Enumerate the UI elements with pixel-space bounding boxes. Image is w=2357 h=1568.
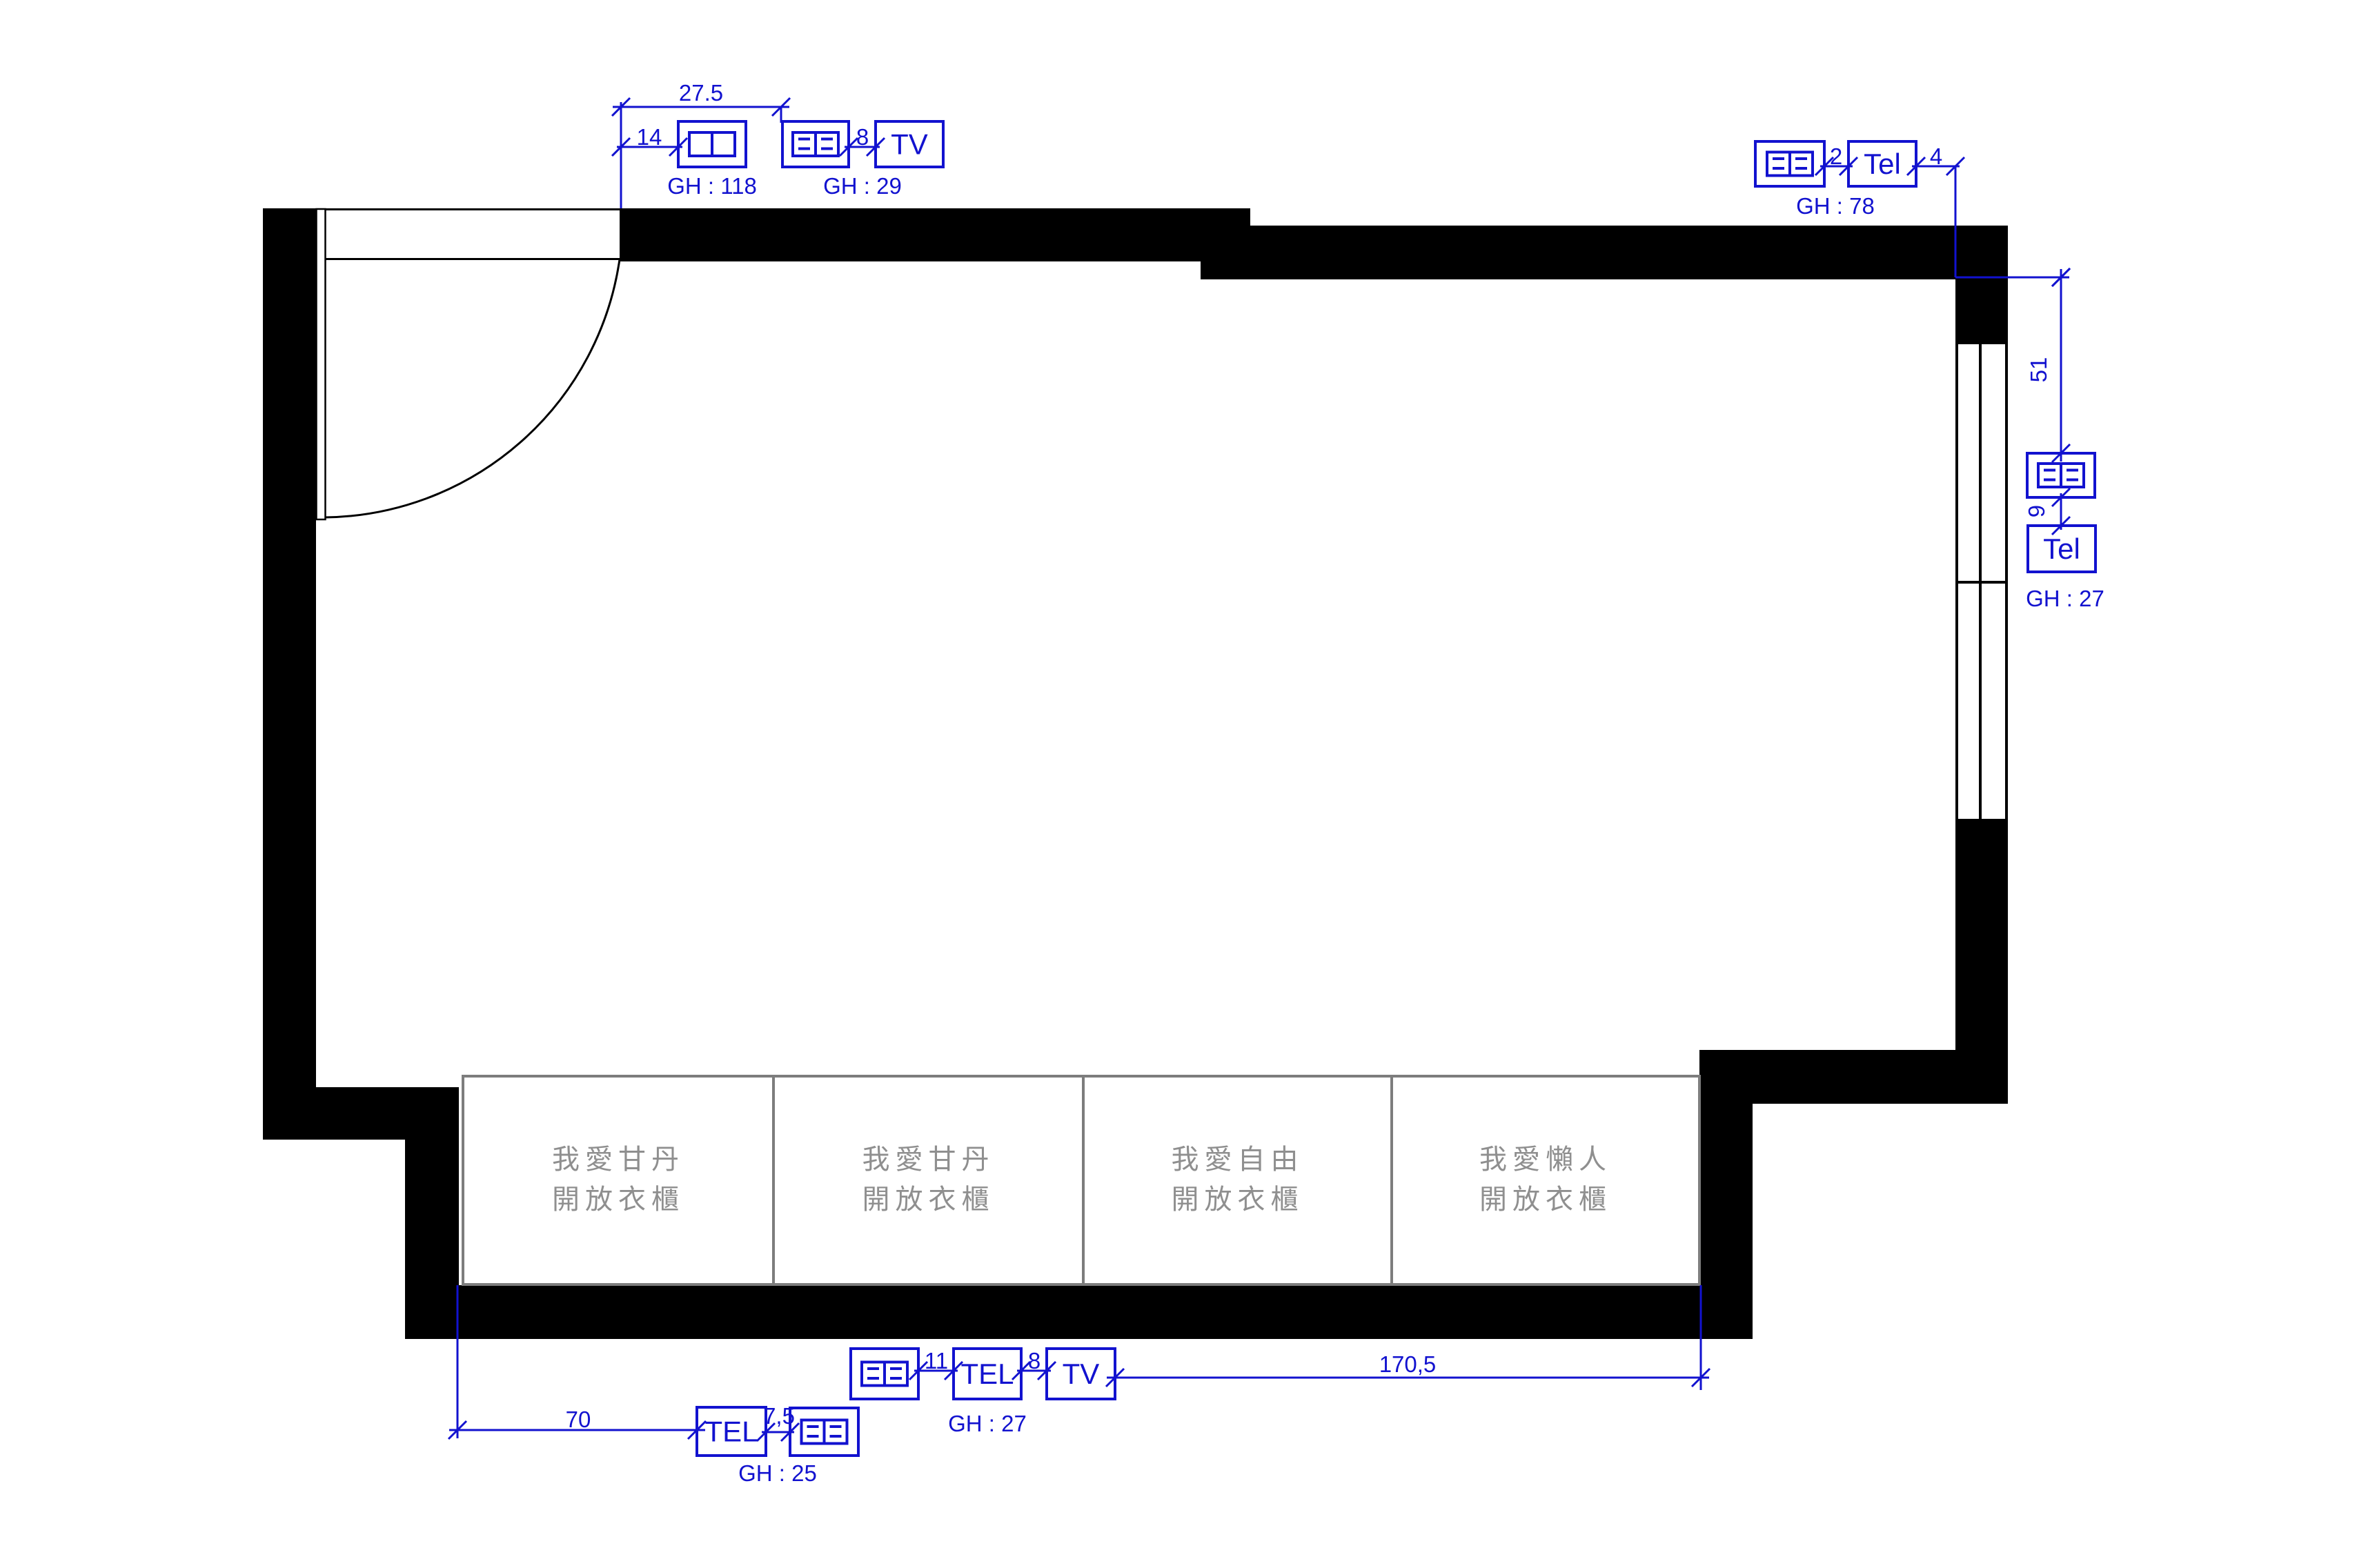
svg-text:GH : 27: GH : 27	[2026, 586, 2104, 611]
svg-text:開放衣櫃: 開放衣櫃	[552, 1184, 684, 1215]
svg-text:11: 11	[925, 1348, 948, 1373]
svg-text:2: 2	[1830, 143, 1842, 169]
svg-text:GH : 118: GH : 118	[667, 173, 757, 199]
svg-text:4: 4	[1930, 143, 1942, 169]
svg-text:8: 8	[1028, 1348, 1041, 1373]
svg-text:Tel: Tel	[1864, 148, 1901, 180]
svg-text:GH : 78: GH : 78	[1796, 193, 1875, 219]
svg-text:TEL: TEL	[704, 1416, 758, 1448]
svg-text:14: 14	[637, 124, 662, 150]
svg-text:開放衣櫃: 開放衣櫃	[862, 1184, 995, 1215]
svg-text:51: 51	[2026, 357, 2051, 383]
svg-text:TEL: TEL	[960, 1358, 1014, 1390]
svg-text:Tel: Tel	[2043, 533, 2080, 565]
svg-text:GH : 25: GH : 25	[738, 1460, 817, 1486]
svg-text:GH : 29: GH : 29	[823, 173, 902, 199]
svg-text:GH : 27: GH : 27	[948, 1411, 1027, 1436]
svg-text:開放衣櫃: 開放衣櫃	[1479, 1184, 1612, 1215]
svg-text:我愛自由: 我愛自由	[1172, 1144, 1304, 1175]
svg-text:TV: TV	[891, 128, 928, 161]
svg-text:27.5: 27.5	[679, 80, 723, 106]
svg-text:我愛甘丹: 我愛甘丹	[552, 1144, 684, 1175]
svg-text:我愛懶人: 我愛懶人	[1479, 1144, 1612, 1175]
svg-text:170,5: 170,5	[1379, 1351, 1437, 1377]
svg-text:開放衣櫃: 開放衣櫃	[1172, 1184, 1304, 1215]
svg-text:9: 9	[2024, 505, 2049, 517]
svg-text:70: 70	[566, 1407, 591, 1432]
svg-text:我愛甘丹: 我愛甘丹	[862, 1144, 995, 1175]
svg-text:8: 8	[856, 124, 869, 150]
svg-text:TV: TV	[1063, 1358, 1100, 1390]
